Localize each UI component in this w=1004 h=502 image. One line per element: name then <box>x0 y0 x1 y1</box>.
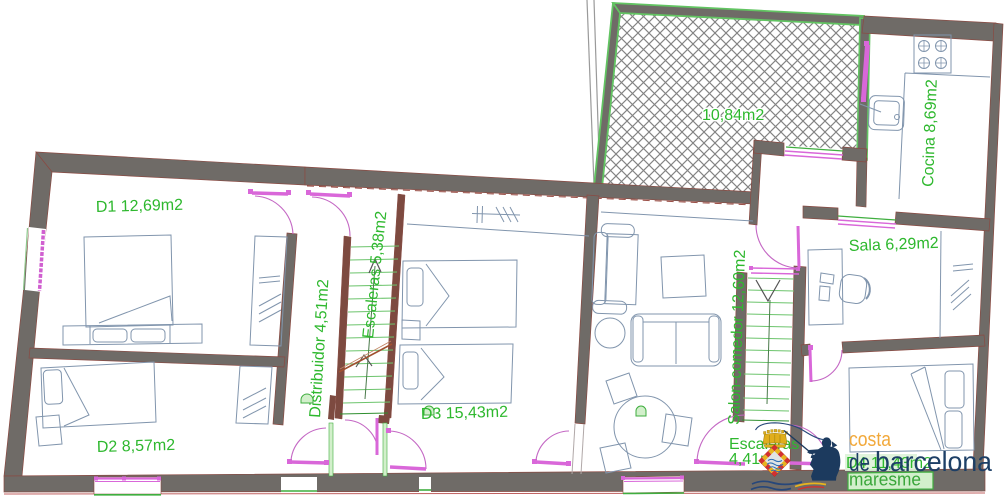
svg-text:10,84m2: 10,84m2 <box>702 107 764 124</box>
svg-text:D1 12,69m2: D1 12,69m2 <box>96 197 184 216</box>
svg-text:D3 15,43m2: D3 15,43m2 <box>421 404 509 423</box>
svg-text:Sala 6,29m2: Sala 6,29m2 <box>849 235 939 255</box>
svg-text:D2 8,57m2: D2 8,57m2 <box>97 437 176 456</box>
svg-text:maresme: maresme <box>849 470 921 490</box>
